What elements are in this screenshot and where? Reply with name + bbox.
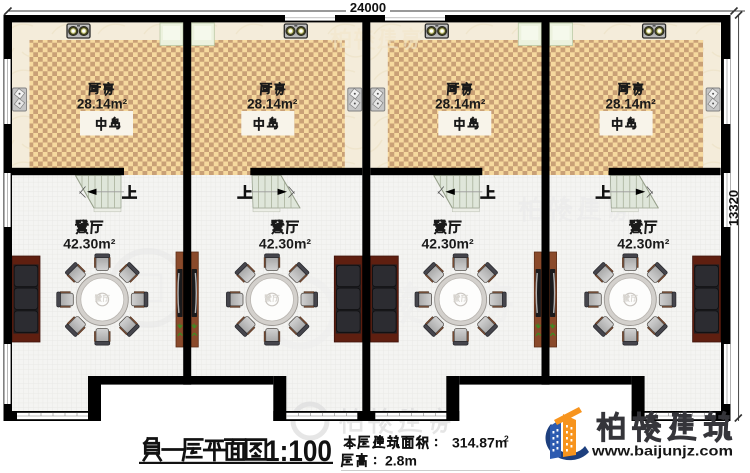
svg-text:28.14m²: 28.14m²	[605, 97, 656, 112]
svg-text:www.baijunjz.com: www.baijunjz.com	[591, 444, 733, 459]
svg-text:24000: 24000	[350, 0, 386, 15]
svg-text:314.87m: 314.87m	[452, 435, 507, 451]
svg-text:28.14m²: 28.14m²	[435, 97, 486, 112]
svg-text:28.14m²: 28.14m²	[247, 97, 298, 112]
svg-text:42.30m²: 42.30m²	[617, 236, 669, 252]
svg-text:42.30m²: 42.30m²	[63, 236, 115, 252]
svg-text:42.30m²: 42.30m²	[422, 236, 474, 252]
svg-text:28.14m²: 28.14m²	[77, 97, 128, 112]
svg-text:13320: 13320	[726, 190, 741, 226]
svg-text:2: 2	[504, 434, 509, 444]
svg-text:42.30m²: 42.30m²	[259, 236, 311, 252]
svg-text:2.8m: 2.8m	[385, 453, 417, 469]
